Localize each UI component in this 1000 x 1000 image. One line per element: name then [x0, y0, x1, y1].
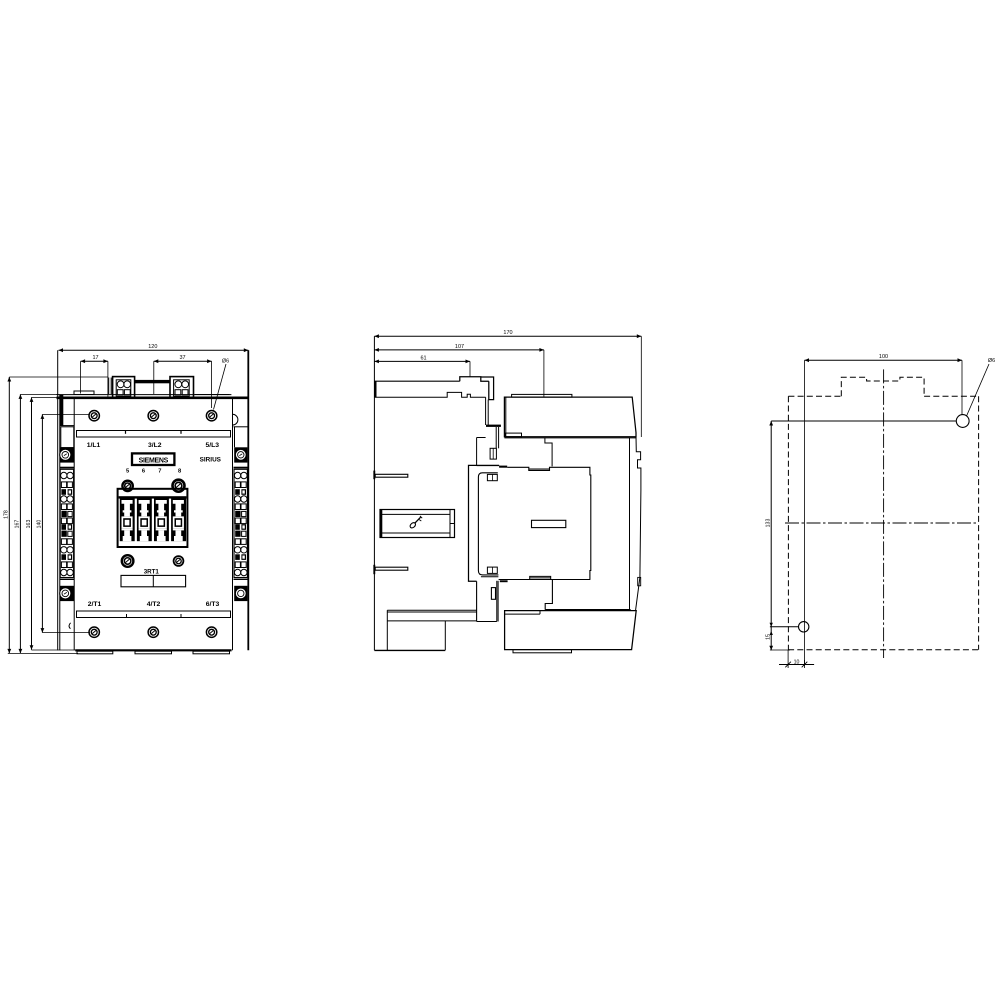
svg-text:37: 37 — [179, 355, 185, 361]
svg-text:61: 61 — [420, 355, 426, 361]
svg-text:140: 140 — [37, 520, 43, 529]
svg-text:170: 170 — [503, 330, 512, 336]
svg-text:17: 17 — [92, 355, 98, 361]
svg-text:100: 100 — [879, 354, 888, 360]
svg-text:7: 7 — [158, 468, 161, 474]
svg-text:107: 107 — [455, 344, 464, 350]
svg-text:10: 10 — [794, 659, 800, 665]
svg-text:120: 120 — [148, 344, 157, 350]
svg-text:2/T1: 2/T1 — [88, 601, 102, 608]
svg-text:15: 15 — [766, 634, 772, 640]
svg-text:1/L1: 1/L1 — [87, 442, 101, 449]
svg-text:SIEMENS: SIEMENS — [139, 457, 169, 464]
svg-text:167: 167 — [15, 520, 21, 529]
svg-text:133: 133 — [766, 519, 772, 528]
svg-text:6/T3: 6/T3 — [206, 601, 220, 608]
svg-text:Ø6: Ø6 — [988, 358, 995, 364]
svg-text:3RT1: 3RT1 — [144, 569, 160, 576]
svg-text:3/L2: 3/L2 — [148, 442, 162, 449]
svg-text:5/L3: 5/L3 — [205, 442, 219, 449]
svg-text:4/T2: 4/T2 — [147, 601, 161, 608]
svg-text:178: 178 — [4, 510, 10, 519]
svg-text:Ø6: Ø6 — [222, 358, 229, 364]
svg-text:163: 163 — [26, 520, 32, 529]
svg-text:SIRIUS: SIRIUS — [200, 456, 222, 463]
